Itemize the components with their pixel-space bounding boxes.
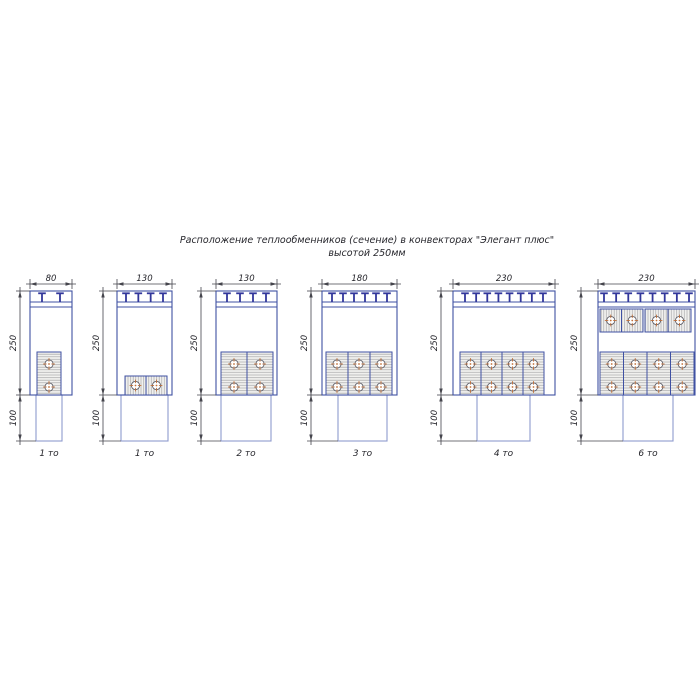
width-dimension-label: 230 [496,274,512,284]
mounting-clip-icon [135,293,143,302]
dimension-arrow [391,282,398,285]
mounting-clip-icon [600,293,608,302]
base-dimension-label: 100 [9,410,19,426]
drawing-canvas: Расположение теплообменников (сечение) в… [0,0,700,700]
convector-4: 1802501003 то [300,274,401,459]
convector-1: 802501001 то [9,274,76,459]
duct-outline [338,395,387,441]
mounting-clip-icon [122,293,130,302]
duct-outline [121,395,168,441]
dimension-arrow [271,282,278,285]
technical-drawing: 802501001 то1302501001 то1302501002 то18… [0,0,700,700]
dimension-arrow [199,291,202,298]
mounting-clip-icon [361,293,369,302]
mounting-clip-icon [624,293,632,302]
mounting-clip-icon [147,293,155,302]
height-dimension-label: 250 [92,335,102,351]
mounting-clip-icon [56,293,64,302]
dimension-arrow [439,435,442,442]
base-dimension-label: 100 [190,410,200,426]
height-dimension-label: 250 [570,335,580,351]
mounting-clip-icon [528,293,536,302]
dimension-arrow [579,291,582,298]
width-dimension-label: 80 [46,274,57,284]
width-dimension-label: 230 [638,274,654,284]
dimension-arrow [66,282,73,285]
mounting-clip-icon [339,293,347,302]
mounting-clip-icon [649,293,657,302]
dimension-arrow [439,389,442,396]
duct-outline [623,395,673,441]
dimension-arrow [439,395,442,402]
dimension-arrow [199,389,202,396]
dimension-arrow [166,282,173,285]
mounting-clip-icon [223,293,231,302]
duct-outline [36,395,62,441]
unit-label: 2 то [236,449,256,459]
mounting-clip-icon [461,293,469,302]
mounting-clip-icon [506,293,514,302]
base-dimension-label: 100 [430,410,440,426]
convector-2: 1302501001 то [92,274,176,459]
mounting-clip-icon [159,293,167,302]
dimension-arrow [216,282,223,285]
dimension-arrow [322,282,329,285]
dimension-arrow [101,435,104,442]
base-dimension-label: 100 [92,410,102,426]
mounting-clip-icon [539,293,547,302]
dimension-arrow [117,282,124,285]
mounting-clip-icon [673,293,681,302]
mounting-clip-icon [328,293,336,302]
mounting-clip-icon [383,293,391,302]
convector-3: 1302501002 то [190,274,281,459]
unit-label: 6 то [638,449,658,459]
unit-label: 3 то [353,449,373,459]
mounting-clip-icon [612,293,620,302]
unit-label: 1 то [39,449,59,459]
dimension-arrow [30,282,37,285]
dimension-arrow [579,395,582,402]
height-dimension-label: 250 [430,335,440,351]
mounting-clip-icon [236,293,244,302]
mounting-clip-icon [517,293,525,302]
height-dimension-label: 250 [300,335,310,351]
mounting-clip-icon [483,293,491,302]
duct-outline [477,395,530,441]
width-dimension-label: 180 [351,274,367,284]
height-dimension-label: 250 [9,335,19,351]
width-dimension-label: 130 [238,274,254,284]
width-dimension-label: 130 [136,274,152,284]
dimension-arrow [18,395,21,402]
dimension-arrow [199,435,202,442]
dimension-arrow [18,435,21,442]
dimension-arrow [309,291,312,298]
mounting-clip-icon [372,293,380,302]
mounting-clip-icon [249,293,257,302]
dimension-arrow [101,291,104,298]
dimension-arrow [101,389,104,396]
convector-5: 2302501004 то [430,274,559,459]
dimension-arrow [309,435,312,442]
mounting-clip-icon [350,293,358,302]
unit-label: 1 то [135,449,155,459]
mounting-clip-icon [637,293,645,302]
dimension-arrow [439,291,442,298]
dimension-arrow [309,395,312,402]
mounting-clip-icon [38,293,46,302]
dimension-arrow [18,389,21,396]
dimension-arrow [453,282,460,285]
mounting-clip-icon [661,293,669,302]
base-dimension-label: 100 [300,410,310,426]
mounting-clip-icon [262,293,270,302]
mounting-clip-icon [685,293,693,302]
convector-6: 2302501006 то [570,274,699,459]
height-dimension-label: 250 [190,335,200,351]
dimension-arrow [18,291,21,298]
mounting-clip-icon [495,293,503,302]
dimension-arrow [199,395,202,402]
dimension-arrow [598,282,605,285]
unit-label: 4 то [494,449,514,459]
dimension-arrow [549,282,556,285]
mounting-clip-icon [472,293,480,302]
dimension-arrow [101,395,104,402]
base-dimension-label: 100 [570,410,580,426]
dimension-arrow [579,389,582,396]
dimension-arrow [579,435,582,442]
dimension-arrow [309,389,312,396]
duct-outline [221,395,271,441]
dimension-arrow [689,282,696,285]
